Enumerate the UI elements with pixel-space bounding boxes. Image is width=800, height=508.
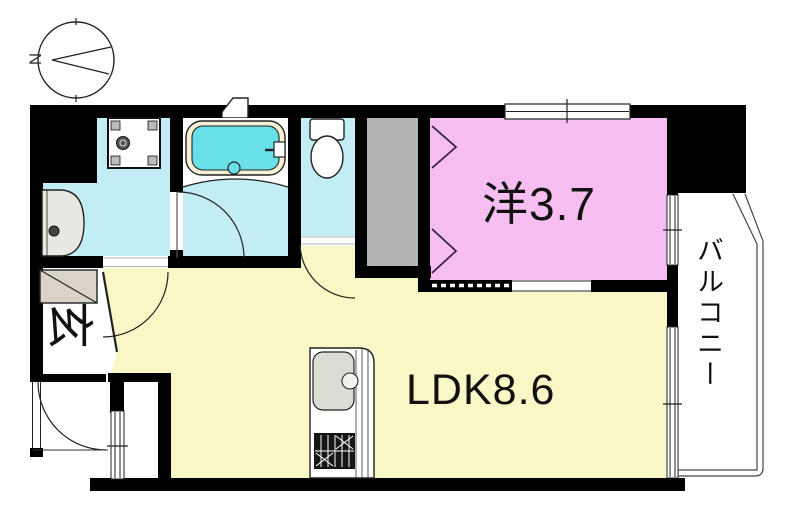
- entrance-door: [33, 374, 108, 450]
- west-room-opening: [512, 280, 591, 292]
- structure-block: [30, 105, 97, 183]
- balcony-label: バルコニー: [689, 236, 728, 476]
- ldk-label: LDK8.6: [406, 366, 555, 415]
- kitchen-unit: [310, 348, 374, 478]
- toilet: [310, 119, 344, 178]
- washing-machine-pan: [108, 118, 160, 168]
- window-top: [505, 99, 630, 123]
- floor-plan: 洋3.7 LDK8.6 玄 バルコニー N: [0, 0, 800, 508]
- vent-protrusion: [222, 98, 248, 118]
- western-room-label: 洋3.7: [482, 168, 596, 234]
- closet-floor: [367, 118, 418, 266]
- entrance-label: 玄: [39, 297, 97, 353]
- entrance-opening: [30, 382, 43, 448]
- window-void: [107, 411, 128, 479]
- compass: [38, 18, 114, 102]
- bathtub: [183, 118, 288, 187]
- washbasin: [42, 190, 84, 256]
- compass-north-label: N: [26, 53, 46, 65]
- stove: [314, 433, 355, 469]
- floor-plan-drawing: [0, 0, 800, 508]
- kitchen-faucet: [342, 373, 358, 389]
